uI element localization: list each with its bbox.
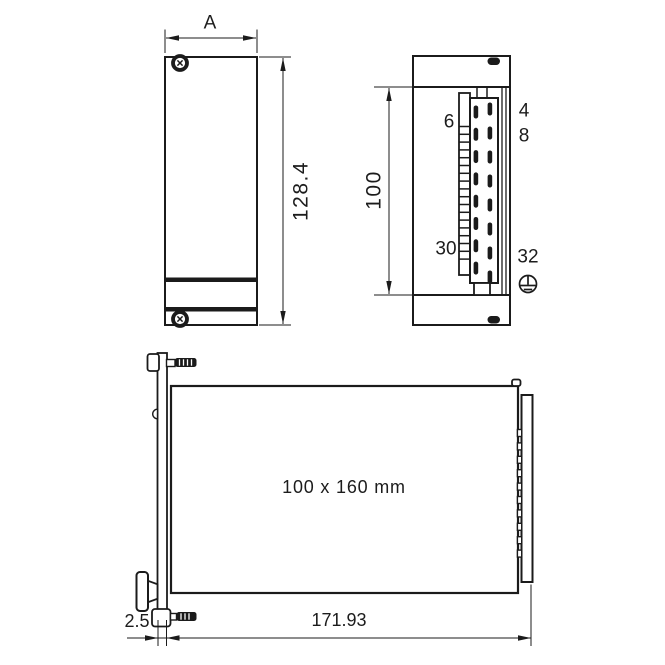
- connector-pin: [488, 175, 493, 188]
- connector-tooth: [517, 523, 521, 530]
- connector-tooth: [517, 430, 521, 437]
- pin-label-4: 4: [519, 102, 530, 121]
- edge-connector-block: [522, 395, 533, 582]
- connector-pin: [474, 172, 479, 185]
- extraction-knob-icon: [137, 572, 158, 611]
- drawing-linework: [0, 0, 665, 665]
- handle-pivot-bump: [153, 409, 158, 419]
- dim-label-height-100: 100: [364, 170, 385, 210]
- dimension-height-100: [386, 88, 391, 294]
- connector-tooth: [517, 456, 521, 463]
- connector-pin: [488, 151, 493, 164]
- connector-tooth: [517, 497, 521, 504]
- oval-slot-top-icon: [488, 58, 501, 66]
- connector-tooth: [517, 550, 521, 557]
- connector-pin: [488, 271, 493, 284]
- connector-pin: [474, 150, 479, 163]
- pin-label-8: 8: [519, 127, 530, 146]
- connector-tooth: [517, 470, 521, 477]
- connector-pin: [474, 262, 479, 275]
- pin-label-30: 30: [435, 240, 456, 259]
- depth-view: [127, 353, 533, 646]
- connector-body: [470, 98, 498, 283]
- oval-slot-bottom-icon: [488, 316, 501, 324]
- torx-screw-top-icon: [173, 56, 187, 70]
- pin-label-32: 32: [517, 248, 538, 267]
- technical-drawing: A 128.4 100 6 30 4 8 32 100 x 160 mm 171…: [0, 0, 665, 665]
- connector-pin: [488, 103, 493, 116]
- connector-foot: [474, 283, 490, 295]
- dim-label-thickness-25: 2.5: [124, 612, 149, 630]
- dimension-height-128: [259, 57, 291, 325]
- connector-pin: [474, 239, 479, 252]
- front-panel-outline: [165, 57, 257, 325]
- pin-label-6: 6: [444, 113, 455, 132]
- front-panel-strip: [158, 353, 168, 611]
- connector-pin: [488, 127, 493, 140]
- connector-pin: [488, 223, 493, 236]
- connector-wafer: [459, 93, 470, 275]
- mounting-screw-bottom-icon: [152, 609, 197, 627]
- connector-pin: [488, 247, 493, 260]
- mounting-screw-top-icon: [148, 354, 197, 371]
- connector-pin: [474, 106, 479, 119]
- front-panel-groove-upper: [165, 278, 257, 283]
- connector-pin: [488, 199, 493, 212]
- dim-label-depth-171: 171.93: [311, 611, 366, 629]
- side-connector-view: [374, 56, 537, 325]
- front-view: [165, 30, 291, 327]
- dim-label-width-a: A: [204, 14, 217, 33]
- connector-tooth: [517, 443, 521, 450]
- connector-pin: [474, 195, 479, 208]
- pcb-corner-tab: [512, 380, 521, 387]
- connector-tooth: [517, 510, 521, 517]
- torx-screw-bottom-icon: [173, 312, 187, 326]
- connector-tooth: [517, 537, 521, 544]
- protective-earth-icon: [520, 276, 537, 293]
- connector-pin: [474, 217, 479, 230]
- board-size-label: 100 x 160 mm: [282, 478, 406, 496]
- dim-label-height-128: 128.4: [291, 161, 312, 221]
- connector-tooth: [517, 483, 521, 490]
- connector-pin: [474, 128, 479, 141]
